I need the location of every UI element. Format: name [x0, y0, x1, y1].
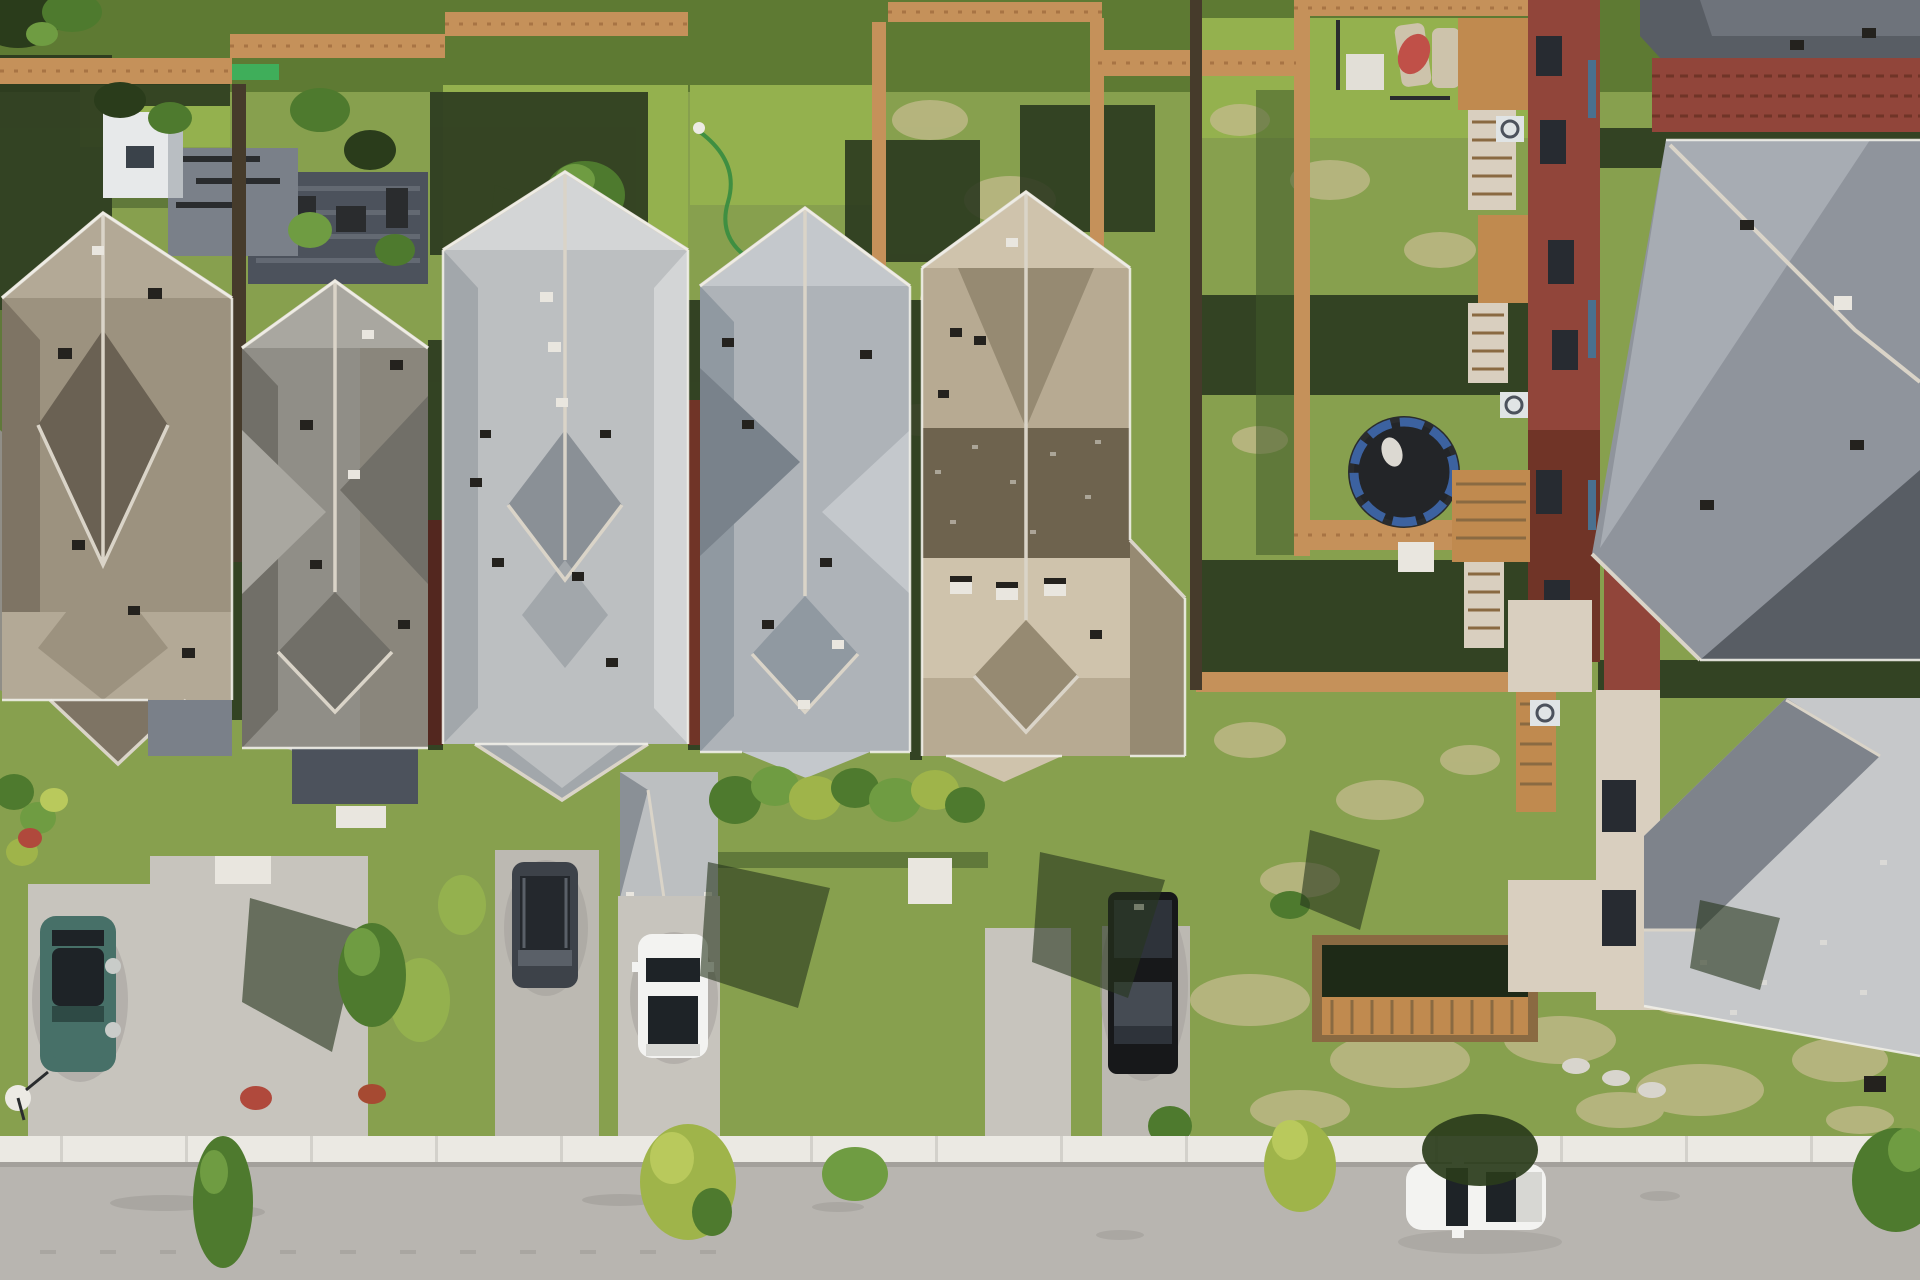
gray-minivan	[512, 862, 578, 988]
white-sedan-glass-roof	[648, 996, 698, 1044]
minivan-windshield	[518, 950, 572, 966]
deck-mid	[1478, 215, 1528, 303]
skylight	[1834, 296, 1852, 310]
enclosure-shadow	[1322, 945, 1528, 1003]
fence-top-3	[445, 12, 688, 36]
sidewalk-slab	[0, 1136, 1920, 1164]
rear-deck-enclosure	[1312, 935, 1538, 1042]
deck-landing	[1508, 880, 1596, 992]
fence-lower-right	[1196, 672, 1540, 692]
teal-suv	[40, 916, 121, 1072]
screenshot-stage	[0, 0, 1920, 1280]
pickup-windshield	[1114, 1026, 1172, 1044]
fence-shaded-2	[1190, 0, 1202, 690]
house-2-steps	[336, 806, 386, 828]
house-1-porch	[148, 700, 232, 756]
yard-lamp	[693, 122, 705, 134]
house-2-roof	[242, 281, 428, 828]
cooler-box	[1398, 542, 1434, 572]
fence-top-6	[1294, 0, 1532, 16]
lounge-chair-2	[1432, 28, 1460, 88]
shed-window	[126, 146, 154, 168]
deck-lower	[1508, 600, 1592, 692]
minivan-roof	[520, 876, 570, 950]
street-tree-3	[822, 1147, 888, 1201]
porch-steps-white	[215, 856, 271, 884]
right-brick-band	[1652, 58, 1920, 132]
teal-suv-roof-glass	[52, 948, 104, 1006]
house-2-porch	[292, 748, 418, 804]
fence-side-3	[1294, 16, 1310, 556]
house-4-roof	[700, 208, 910, 778]
brick-sliver-2	[428, 520, 443, 745]
aerial-photo	[0, 0, 1920, 1280]
sidewalk	[0, 1136, 1920, 1164]
house-1-roof	[2, 213, 232, 764]
deck-upper	[1458, 18, 1528, 110]
roof-vent	[1864, 1076, 1886, 1092]
flower-bed	[18, 828, 42, 848]
patio-table	[1346, 54, 1384, 90]
brick-sliver-1	[688, 400, 702, 745]
street-asphalt	[0, 1164, 1920, 1280]
street-tree-dark-canopy	[1422, 1114, 1538, 1186]
house-5-steps	[908, 858, 952, 904]
white-sedan-windshield	[646, 958, 700, 982]
curb-shadow-line	[0, 1162, 1920, 1167]
fence-top-4	[888, 2, 1102, 22]
trampoline	[1348, 416, 1460, 528]
